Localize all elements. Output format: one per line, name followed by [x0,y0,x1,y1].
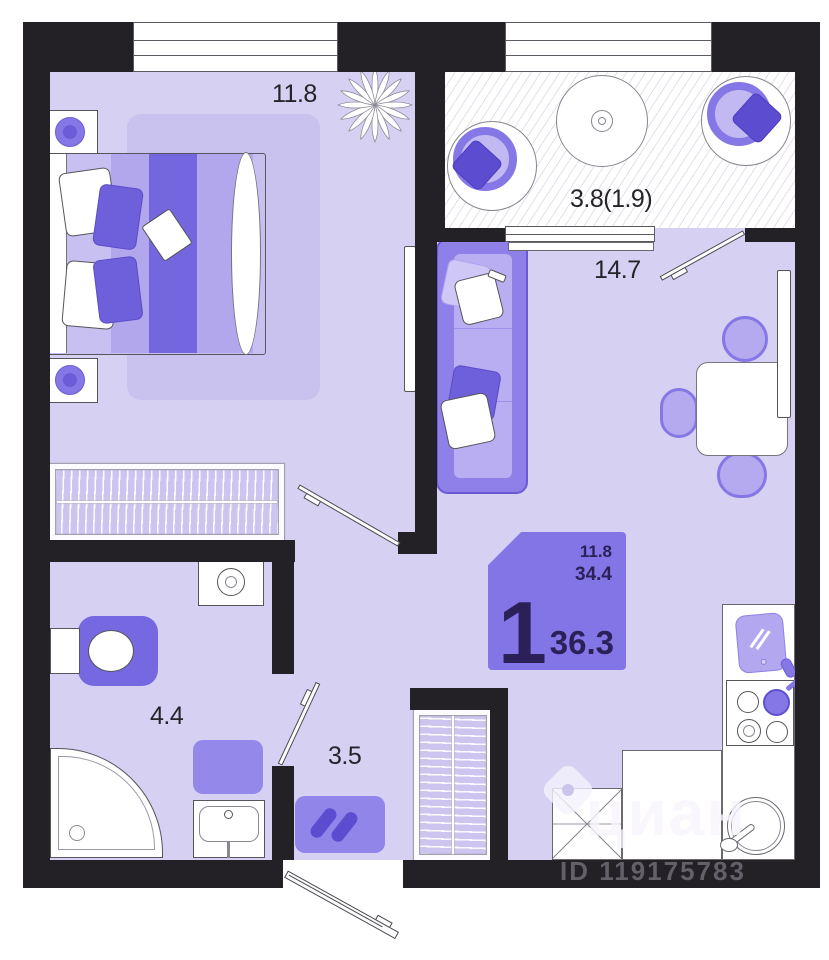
knife-icon [750,628,765,648]
wall-bath-right-lower [272,766,294,860]
burner-icon [737,691,759,713]
pin-hole [560,782,577,799]
dining-table [696,362,788,456]
floor-plan: 11.8 3.8(1.9) 14.7 4.4 3.5 1 11.8 34.4 3… [0,0,829,960]
wall-center-lower [415,242,437,534]
wardrobe-hangers [50,464,284,540]
pillow-purple [92,183,144,251]
area-stamp: 1 11.8 34.4 36.3 [488,532,626,670]
room-label-bedroom: 11.8 [272,80,317,109]
balcony-armchair-right [701,76,791,166]
sofa-pillow-white [439,392,496,451]
window-sill [508,242,654,251]
dining-chair-top [722,316,768,362]
plant-icon [334,64,416,146]
washer-drum-inner [225,576,237,588]
stove [726,680,794,746]
burner-inner [743,725,755,737]
hallway-closet [414,710,492,860]
window-partition [505,226,655,242]
lamp-icon [55,117,85,147]
door-entrance [284,871,399,940]
burner-icon [766,721,788,743]
wall-bath-right-upper [272,562,294,674]
listing-id-watermark: ID 119175783 [560,856,746,887]
toilet-bowl [88,630,134,672]
wall-bedroom-bath [23,540,295,562]
duvet-fold [231,152,261,355]
room-label-hallway: 3.5 [328,742,361,771]
balcony-armchair-left [447,121,537,211]
wall-bottom-left [23,860,283,888]
wall-partition-right [745,228,795,242]
stamp-total-area: 36.3 [550,624,614,662]
basin-pedestal [227,842,230,858]
window-balcony [505,22,712,72]
pan-icon [763,689,790,716]
room-label-balcony: 3.8(1.9) [570,185,652,214]
lamp-icon [55,365,85,395]
board-hole [760,659,767,666]
toilet-tank [50,628,80,674]
pillow-purple [92,256,143,325]
wall-partition-left [415,228,505,242]
brand-watermark: циан [586,776,747,850]
tv-panel-living [777,270,791,418]
table-vase-inner [598,117,606,125]
wall-niche-right [490,688,508,860]
window-bedroom [133,22,338,72]
wall-center-upper [415,72,445,228]
wall-center-foot [398,532,437,554]
cutting-board [735,612,788,674]
stamp-rooms-count: 1 [498,600,547,666]
wall-right [795,22,820,888]
bath-mat [193,740,263,794]
stamp-living-area: 34.4 [575,564,612,586]
basin-faucet [224,810,233,819]
dining-chair-bottom [717,452,767,498]
room-label-bathroom: 4.4 [150,702,183,731]
wall-top-mid [338,22,505,72]
dining-chair-left [660,388,698,438]
stamp-room-area: 11.8 [580,542,612,562]
wall-left [23,22,50,888]
room-label-living: 14.7 [594,256,641,285]
